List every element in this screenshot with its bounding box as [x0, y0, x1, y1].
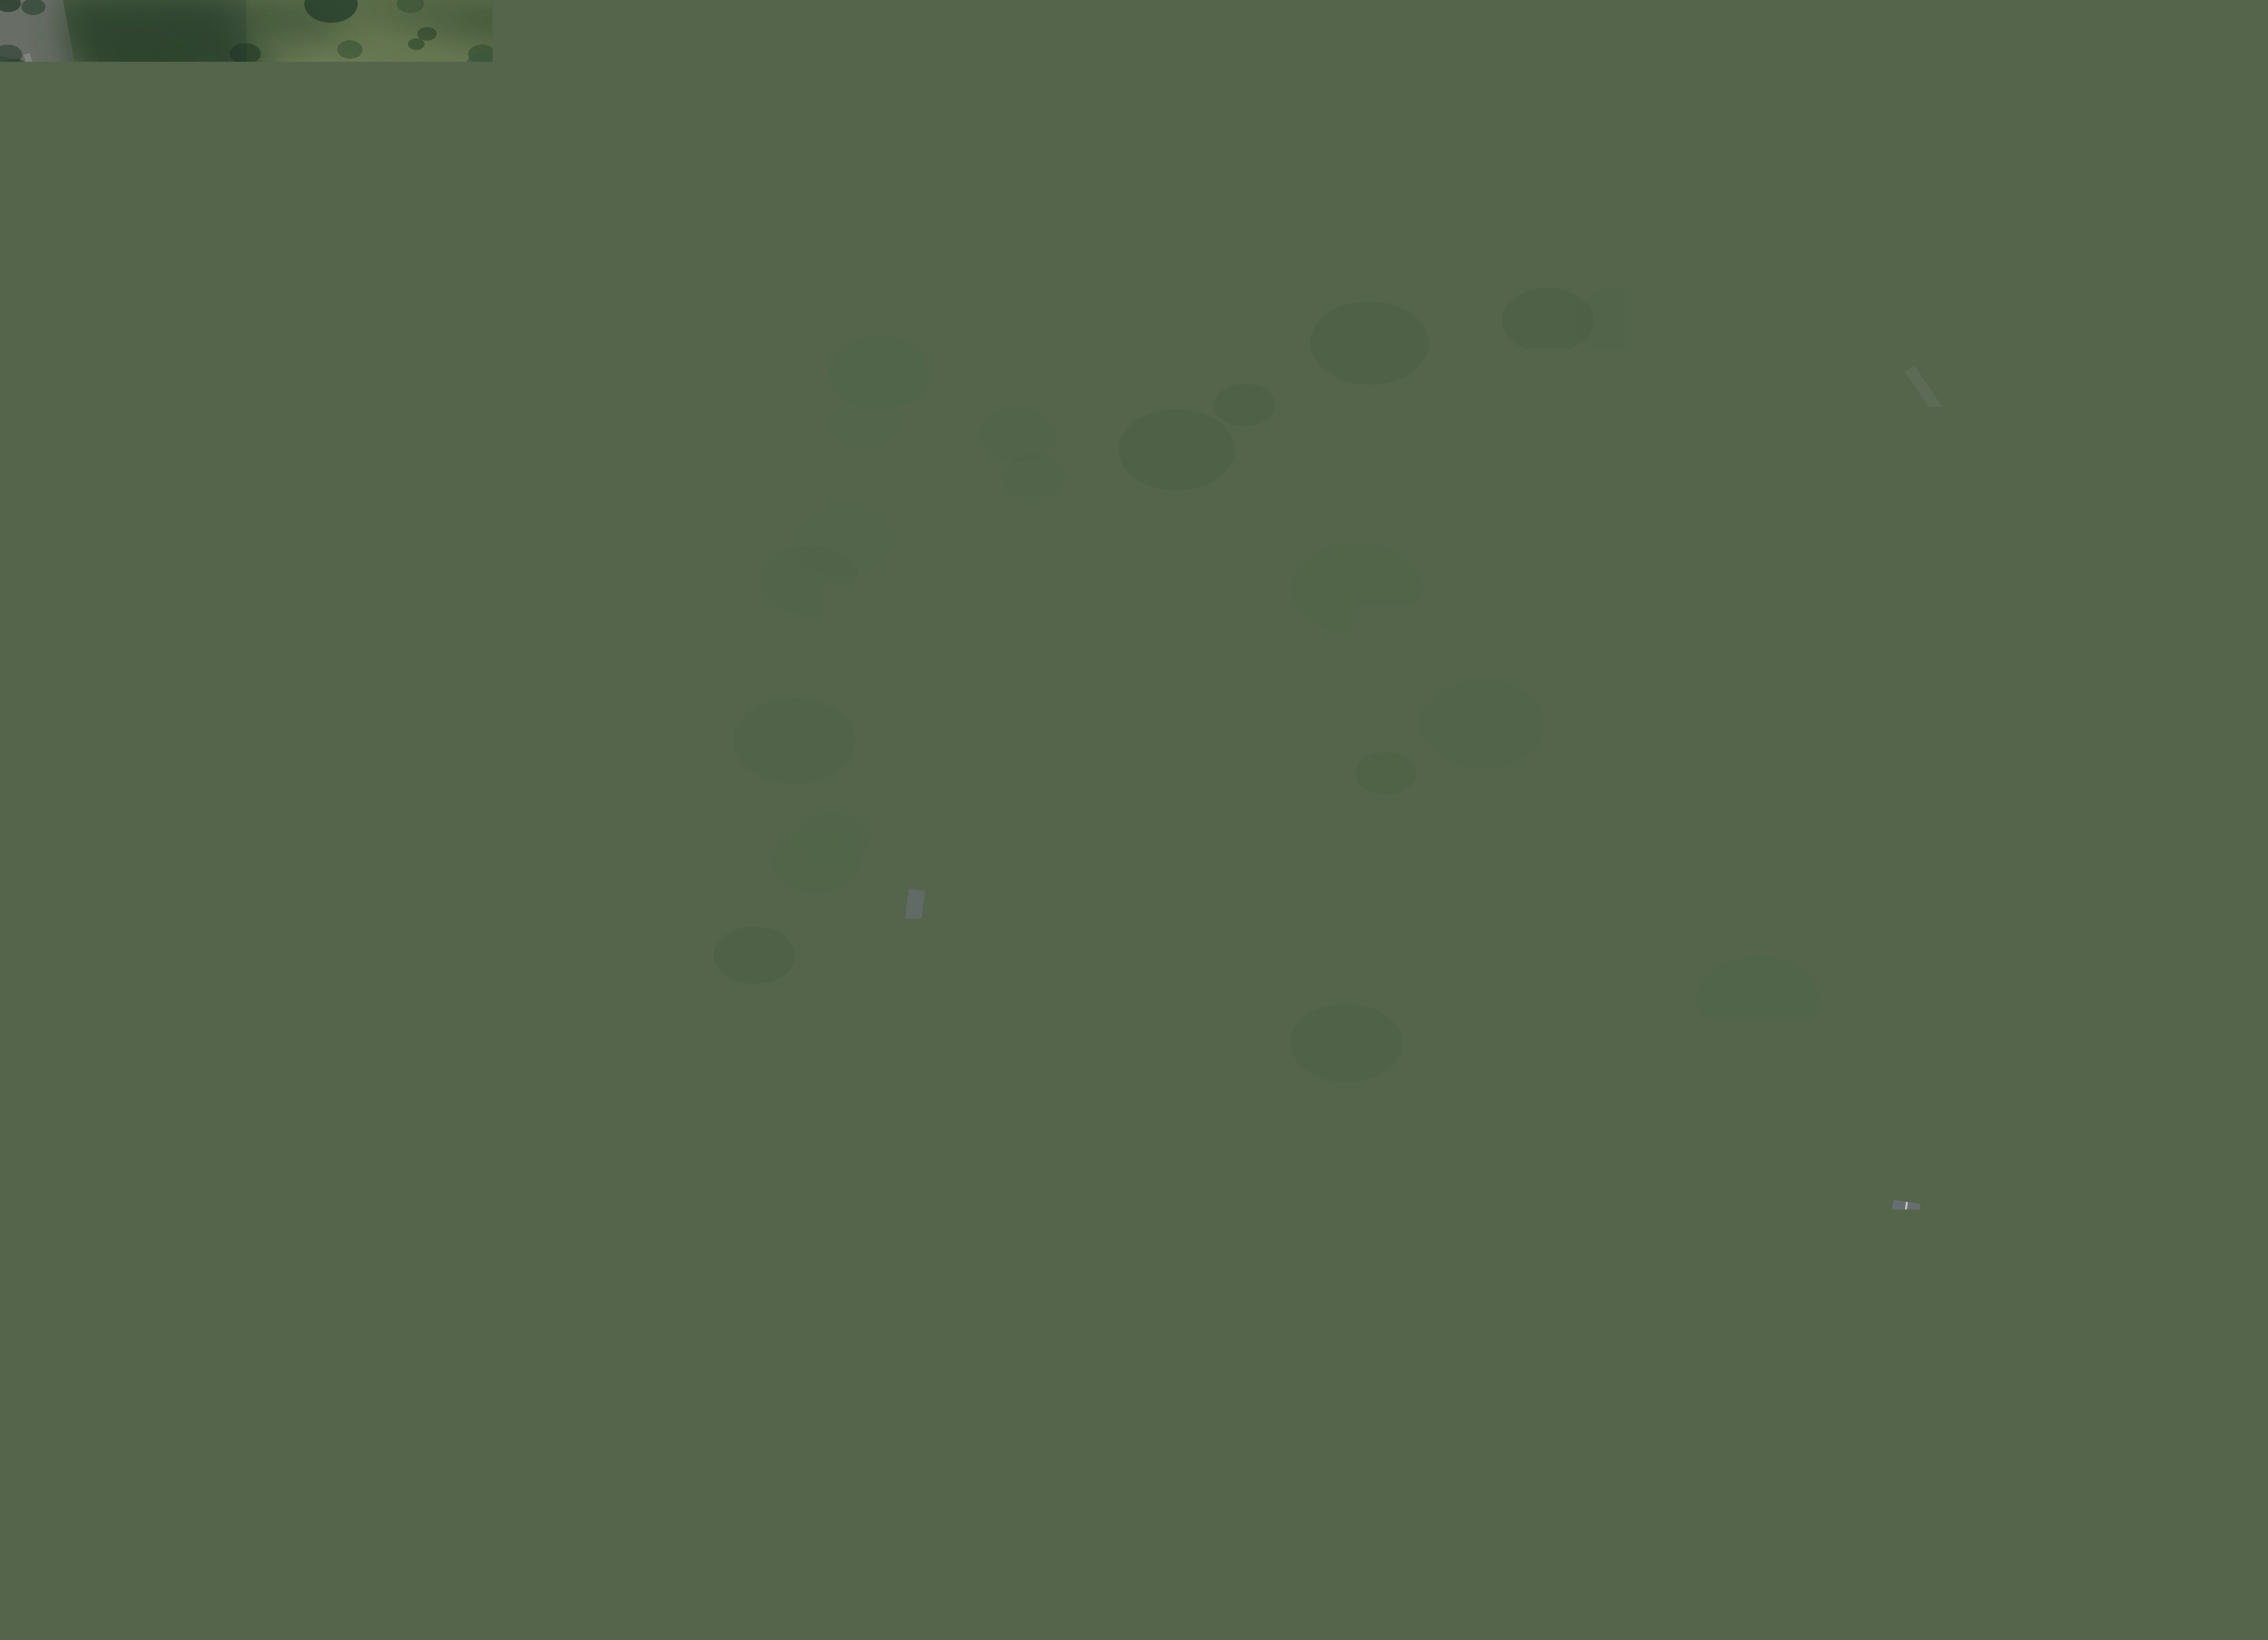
svg-text:Master plan: Master plan [1387, 60, 2268, 231]
svg-text:ROYAL: ROYAL [201, 534, 313, 562]
svg-text:8 clusters, each capturing the: 8 clusters, each capturing the timeless [1389, 301, 2022, 337]
svg-text:CAPRI: CAPRI [308, 748, 413, 776]
svg-text:MARINE: MARINE [68, 262, 200, 290]
svg-text:essence of urban waterfront li: essence of urban waterfront living. [1389, 348, 1885, 384]
svg-text:INDIGO: INDIGO [113, 374, 236, 402]
svg-text:DAMAC Riverside Views is divid: DAMAC Riverside Views is divided into [1389, 253, 2027, 289]
svg-text:AZURE 2: AZURE 2 [19, 164, 165, 193]
